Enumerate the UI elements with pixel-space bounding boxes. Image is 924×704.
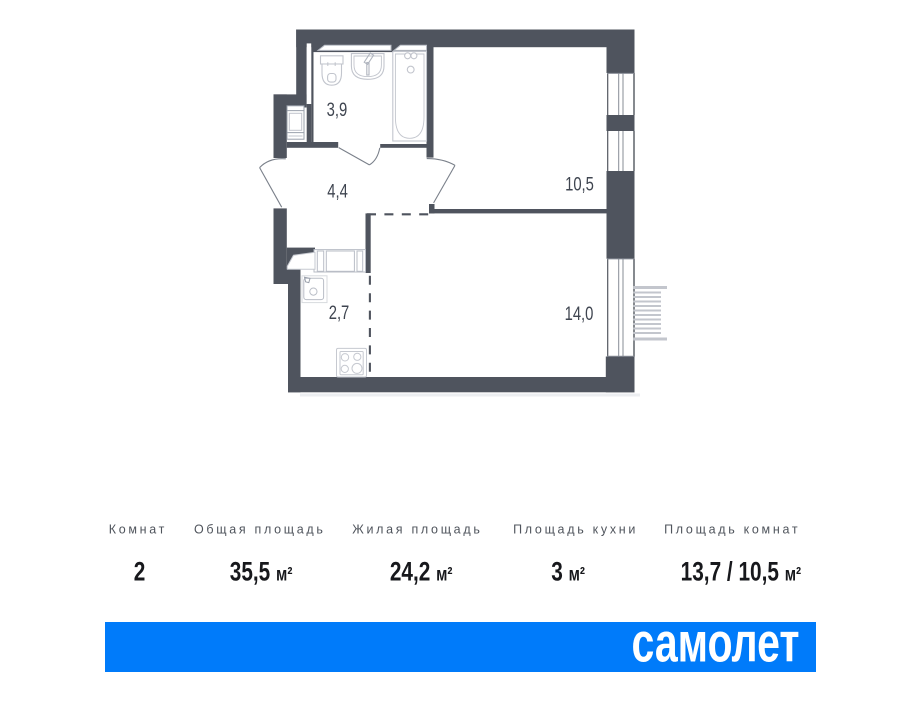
svg-text:Площадь комнат: Площадь комнат (664, 522, 800, 536)
svg-text:13,7 / 10,5 м²: 13,7 / 10,5 м² (681, 557, 802, 587)
svg-text:Общая площадь: Общая площадь (194, 522, 326, 536)
svg-text:2: 2 (134, 557, 146, 587)
svg-text:14,0: 14,0 (565, 303, 594, 324)
svg-text:Жилая площадь: Жилая площадь (352, 522, 482, 536)
svg-text:Площадь кухни: Площадь кухни (513, 522, 638, 536)
svg-text:10,5: 10,5 (565, 174, 594, 195)
svg-text:3,9: 3,9 (327, 99, 348, 120)
svg-text:Комнат: Комнат (109, 522, 167, 536)
svg-text:2,7: 2,7 (329, 302, 350, 323)
svg-text:самолет: самолет (631, 613, 799, 674)
svg-text:4,4: 4,4 (327, 181, 348, 202)
